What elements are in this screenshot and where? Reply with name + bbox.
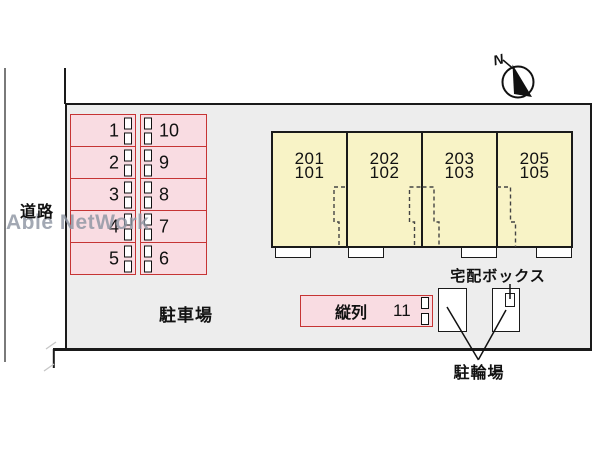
unit-number-lower: 105 [520,166,550,180]
bicycle-parking-box [438,288,467,332]
wheel-stopper-icon [144,245,152,272]
wheel-stopper-icon [124,117,132,144]
parking-stall: 10 [141,115,206,147]
bicycle-parking-label: 駐輪場 [447,359,511,383]
building-unit: 203 103 [421,133,496,246]
unit-number-lower: 101 [295,166,325,180]
entrance-porch [275,248,311,258]
compass-north-icon: N [492,50,534,97]
wheel-stopper-icon [144,149,152,176]
stall-number: 2 [109,152,119,173]
building-unit: 202 102 [346,133,421,246]
stall-number: 7 [159,216,169,237]
stall-number: 8 [159,184,169,205]
stall-number: 3 [109,184,119,205]
wheel-stopper-icon [124,245,132,272]
entrance-porch [461,248,497,258]
parking-grid-left-column: 1 2 3 4 5 [70,114,136,275]
compass-n-label: N [492,50,507,68]
parking-stall: 9 [141,147,206,179]
stall-number: 9 [159,152,169,173]
building-outline: 201 101 202 102 203 103 205 105 [271,131,573,248]
building-unit: 205 105 [496,133,571,246]
wheel-stopper-icon [124,181,132,208]
stall-number: 11 [393,301,411,321]
tandem-label: 縦列 [335,299,367,323]
wheel-stopper-icon [124,149,132,176]
entrance-porch [348,248,384,258]
stall-number: 10 [159,120,179,141]
stall-number: 6 [159,248,169,269]
entrance-porch [536,248,572,258]
building-unit: 201 101 [273,133,346,246]
stall-number: 1 [109,120,119,141]
break-mark [44,342,56,371]
unit-number-lower: 103 [445,166,475,180]
parking-grid-right-column: 10 9 8 7 6 [140,114,207,275]
parking-stall: 2 [71,147,135,179]
parking-stall: 8 [141,179,206,211]
parking-stall: 5 [71,243,135,274]
delivery-box-label: 宅配ボックス [441,265,555,286]
tandem-parking-stall: 縦列 11 [300,295,433,327]
parking-stall: 7 [141,211,206,243]
parking-area-label: 駐車場 [153,301,219,326]
wheel-stopper-icon [144,117,152,144]
site-plan: 1 2 3 4 5 10 9 8 [0,0,600,450]
parking-stall: 3 [71,179,135,211]
wheel-stopper-icon [421,297,429,325]
delivery-box-icon [505,293,515,307]
wheel-stopper-icon [144,181,152,208]
stall-number: 5 [109,248,119,269]
unit-number-lower: 102 [370,166,400,180]
parking-stall: 1 [71,115,135,147]
road-label: 道路 [14,198,60,222]
parking-stall: 6 [141,243,206,274]
